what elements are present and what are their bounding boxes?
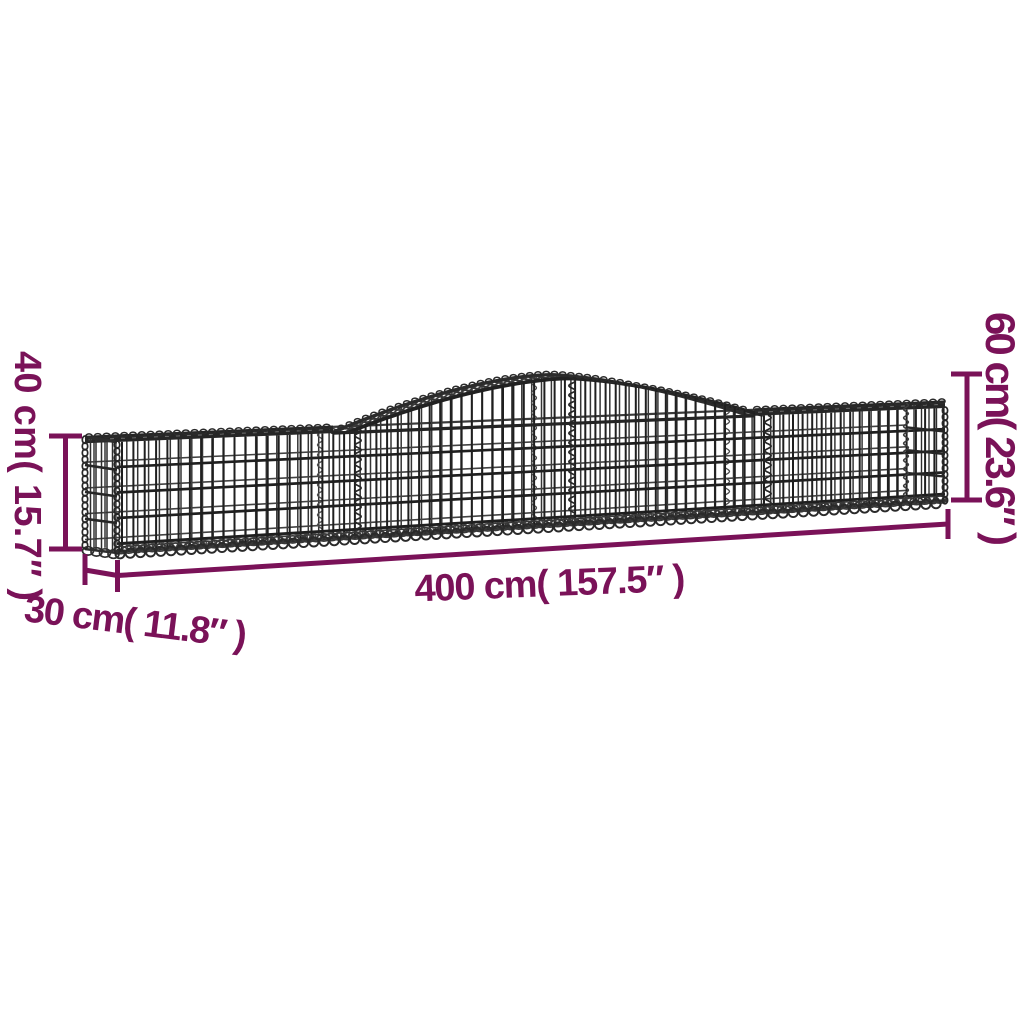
svg-text:40 cm( 15.7″ ): 40 cm( 15.7″ ) [6, 351, 48, 601]
svg-text:400 cm( 157.5″ ): 400 cm( 157.5″ ) [414, 558, 686, 611]
svg-text:60 cm( 23.6″ ): 60 cm( 23.6″ ) [977, 312, 1024, 546]
svg-text:30 cm( 11.8″ ): 30 cm( 11.8″ ) [22, 588, 249, 657]
